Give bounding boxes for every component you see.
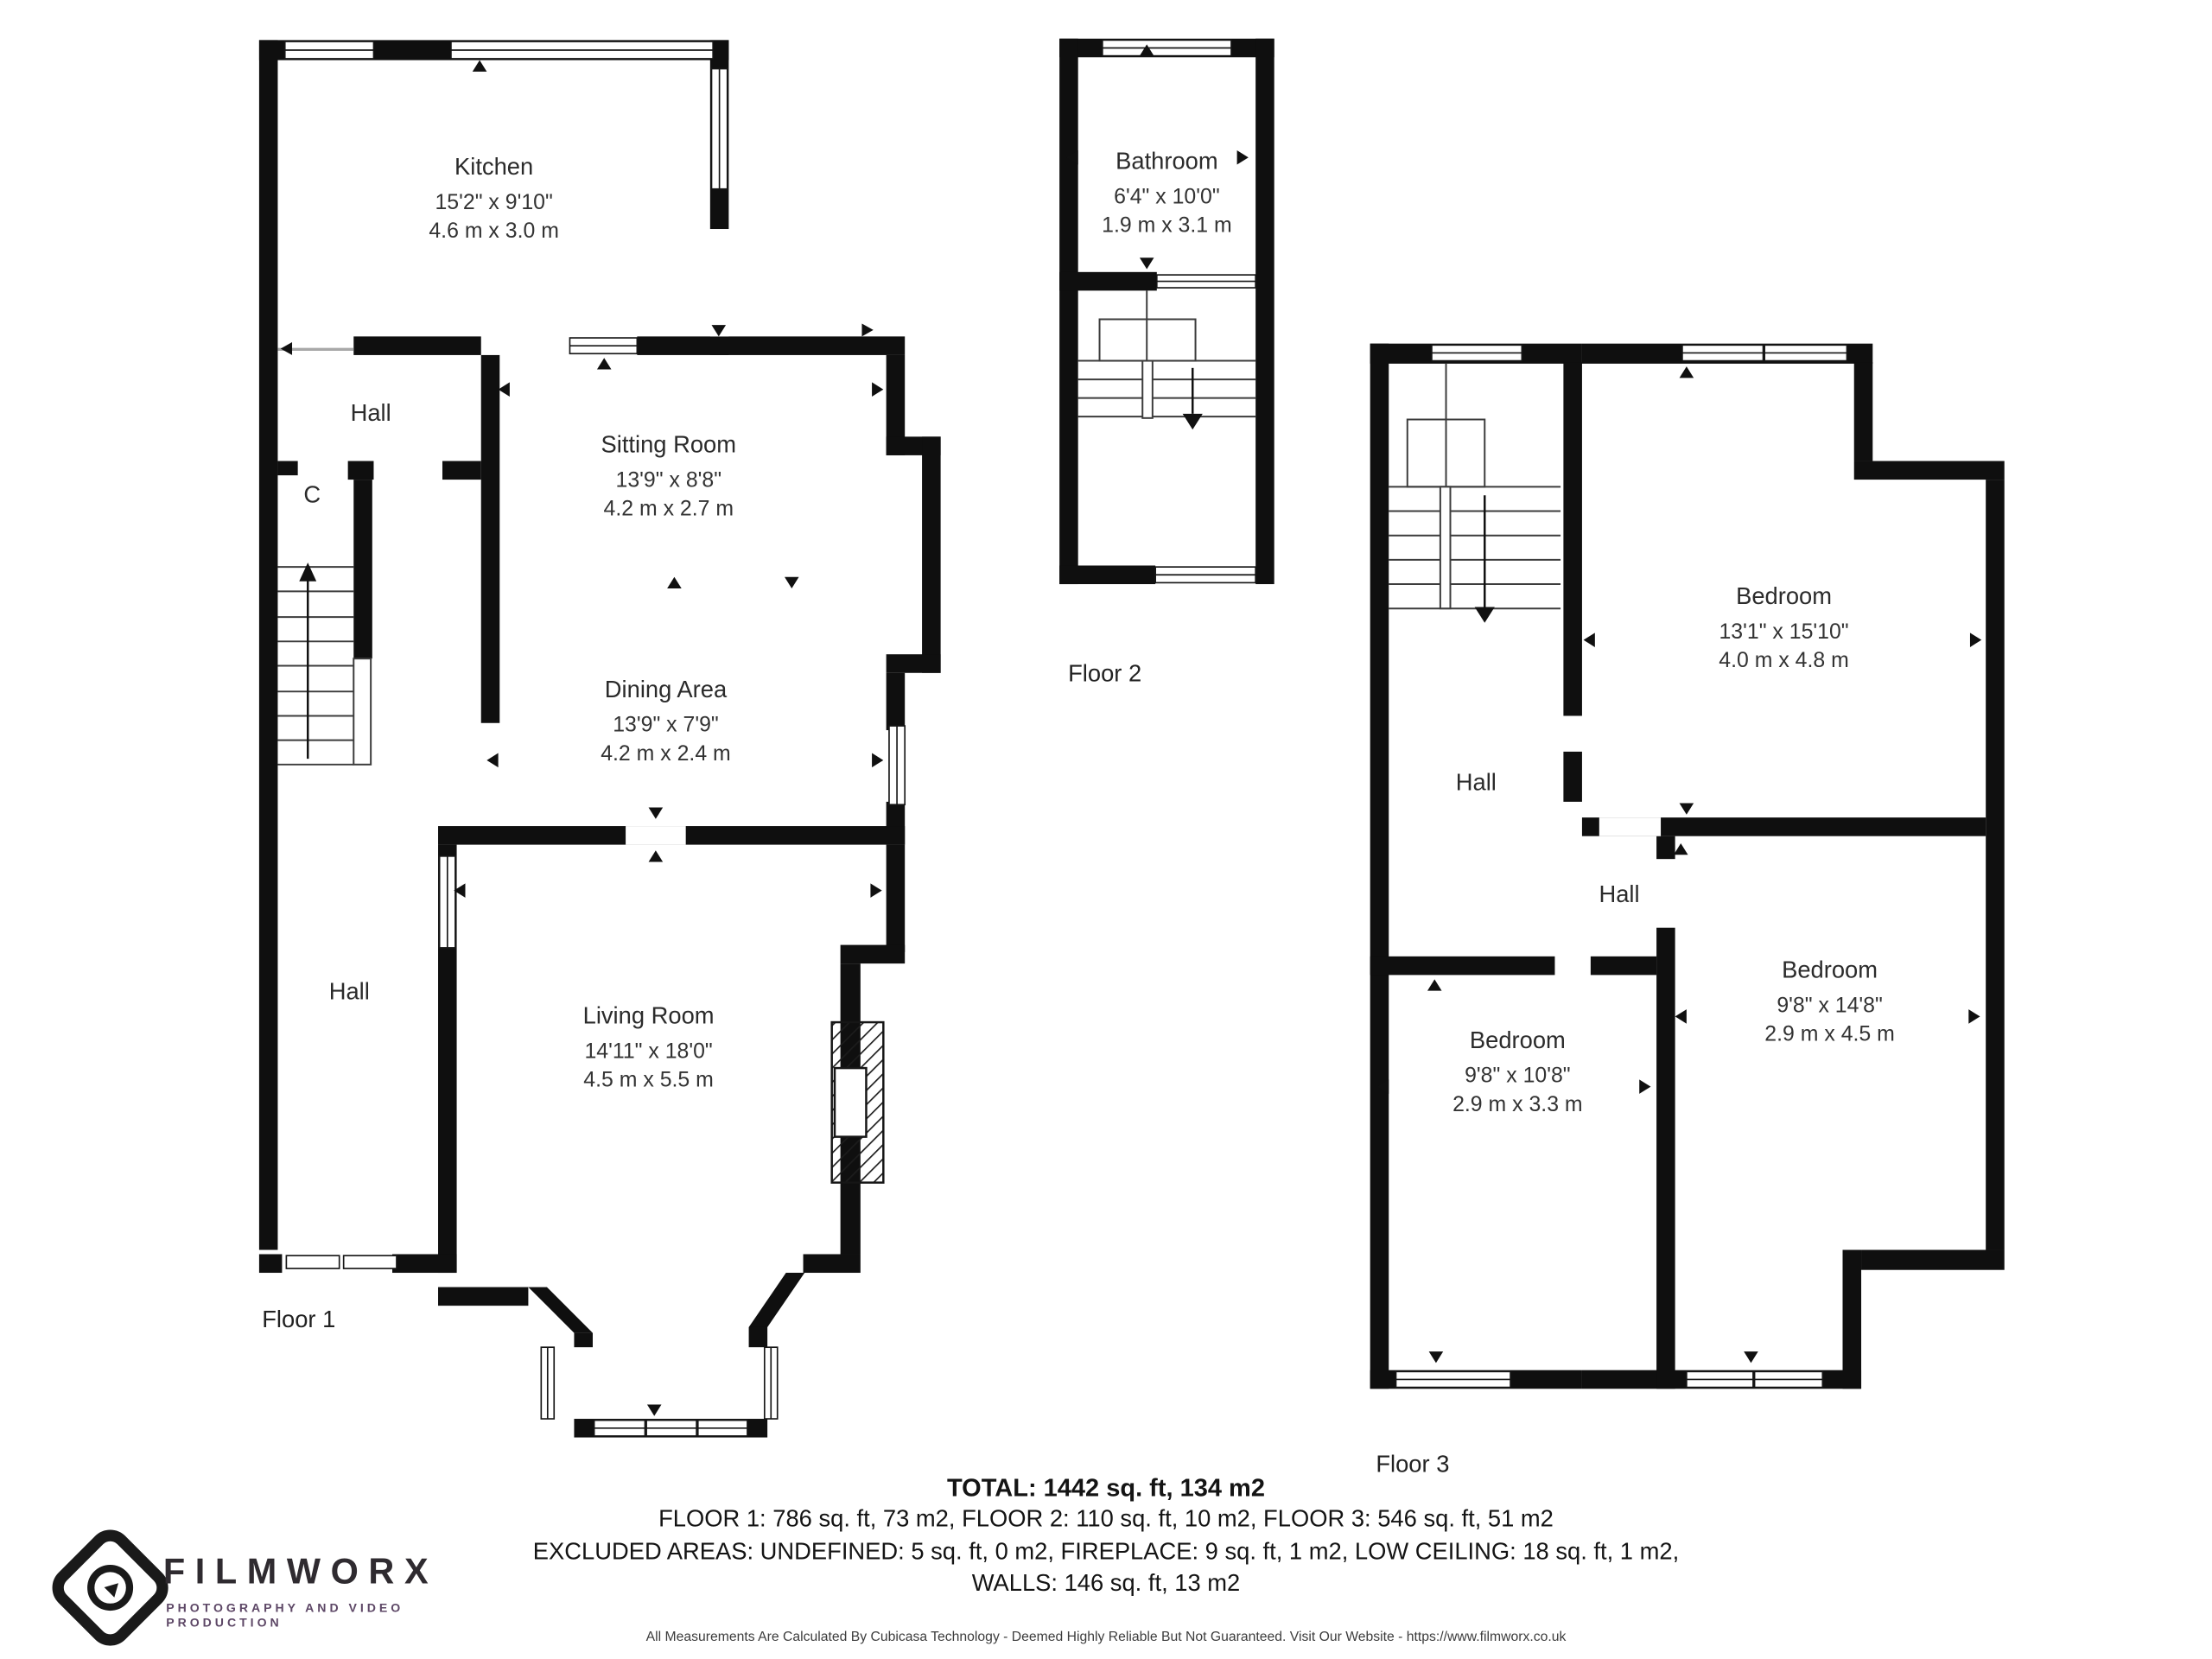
brand-name: FILMWORX	[163, 1552, 438, 1593]
room-label-bathroom: Bathroom 6'4" x 10'0" 1.9 m x 3.1 m	[1102, 149, 1232, 240]
summary-floors: FLOOR 1: 786 sq. ft, 73 m2, FLOOR 2: 110…	[0, 1503, 2212, 1535]
floor3-walls	[1370, 344, 2005, 1389]
floor2-walls	[1059, 39, 1274, 584]
floor2-windows	[1103, 40, 1255, 582]
room-label-kitchen: Kitchen 15'2" x 9'10" 4.6 m x 3.0 m	[429, 155, 559, 246]
room-label-hall-3-main: Hall	[1456, 770, 1497, 804]
stairs-up-arrow	[299, 563, 316, 582]
floor2-label: Floor 2	[1068, 662, 1141, 689]
room-label-closet: C	[303, 482, 321, 517]
summary-total: TOTAL: 1442 sq. ft, 134 m2	[0, 1471, 2212, 1503]
floorplan-page: Kitchen 15'2" x 9'10" 4.6 m x 3.0 m Hall…	[0, 0, 2212, 1659]
room-label-dining-area: Dining Area 13'9" x 7'9" 4.2 m x 2.4 m	[601, 677, 731, 769]
floor3-stairs	[1389, 364, 1560, 623]
brand-tagline: PHOTOGRAPHY AND VIDEO PRODUCTION	[166, 1600, 510, 1629]
camera-lens-icon	[87, 1565, 133, 1611]
floor1-windows	[285, 41, 905, 1436]
filmworx-logo: FILMWORX PHOTOGRAPHY AND VIDEO PRODUCTIO…	[52, 1535, 510, 1635]
room-label-hall-lower: Hall	[329, 979, 370, 1014]
floor3-windows	[1396, 345, 1847, 1387]
room-label-sitting-room: Sitting Room 13'9" x 8'8" 4.2 m x 2.7 m	[601, 432, 737, 524]
filmworx-logo-icon	[43, 1521, 177, 1655]
floor3-arrows	[1377, 366, 1981, 1363]
floor1-fireplace	[832, 1022, 884, 1183]
room-label-bedroom-3: Bedroom 9'8" x 14'8" 2.9 m x 4.5 m	[1764, 957, 1895, 1049]
room-label-hall-upper: Hall	[351, 401, 391, 435]
room-label-bedroom-2: Bedroom 9'8" x 10'8" 2.9 m x 3.3 m	[1452, 1028, 1583, 1120]
stairs-down-arrow	[1183, 414, 1203, 429]
room-label-living-room: Living Room 14'11" x 18'0" 4.5 m x 5.5 m	[583, 1004, 715, 1096]
stairs-down-arrow	[1475, 607, 1495, 623]
floorplan-drawing	[0, 0, 2212, 1659]
room-label-hall-3-small: Hall	[1599, 882, 1639, 917]
room-label-bedroom-1: Bedroom 13'1" x 15'10" 4.0 m x 4.8 m	[1719, 584, 1849, 676]
floor2-stairs	[1078, 290, 1255, 429]
floor3-openings	[1599, 817, 1661, 836]
play-icon	[105, 1578, 124, 1597]
floor1-label: Floor 1	[262, 1307, 335, 1334]
